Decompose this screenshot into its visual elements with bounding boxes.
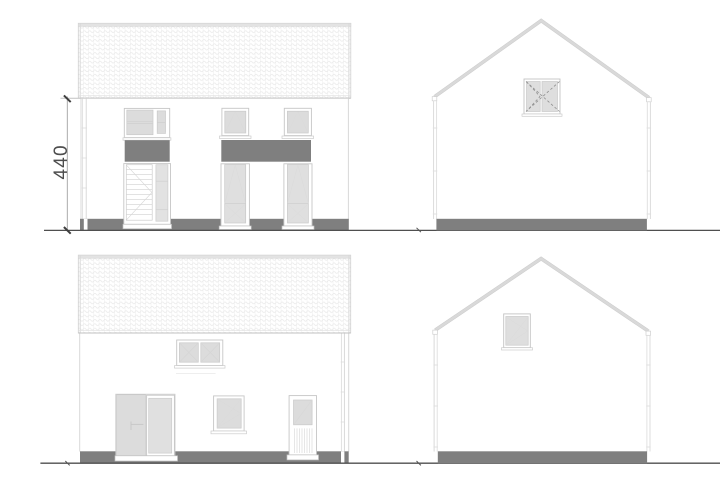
svg-text:440: 440 — [51, 144, 72, 179]
